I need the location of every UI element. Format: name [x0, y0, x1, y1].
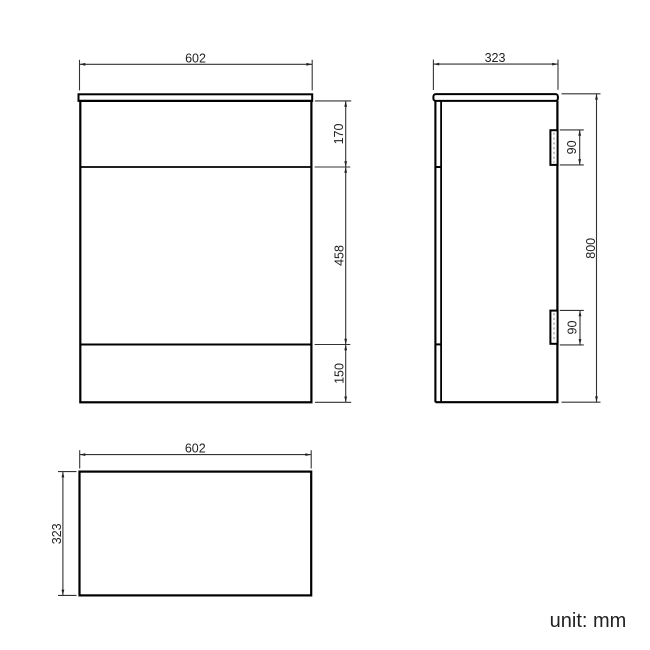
svg-text:90: 90	[565, 140, 579, 154]
svg-text:323: 323	[50, 523, 64, 544]
svg-text:170: 170	[332, 124, 346, 145]
svg-text:800: 800	[584, 238, 598, 259]
svg-text:unit: mm: unit: mm	[550, 610, 627, 632]
svg-text:90: 90	[566, 321, 580, 335]
svg-text:602: 602	[185, 51, 206, 65]
svg-text:458: 458	[333, 245, 347, 266]
svg-text:602: 602	[185, 442, 206, 456]
svg-text:150: 150	[332, 363, 346, 384]
svg-text:323: 323	[485, 51, 506, 65]
